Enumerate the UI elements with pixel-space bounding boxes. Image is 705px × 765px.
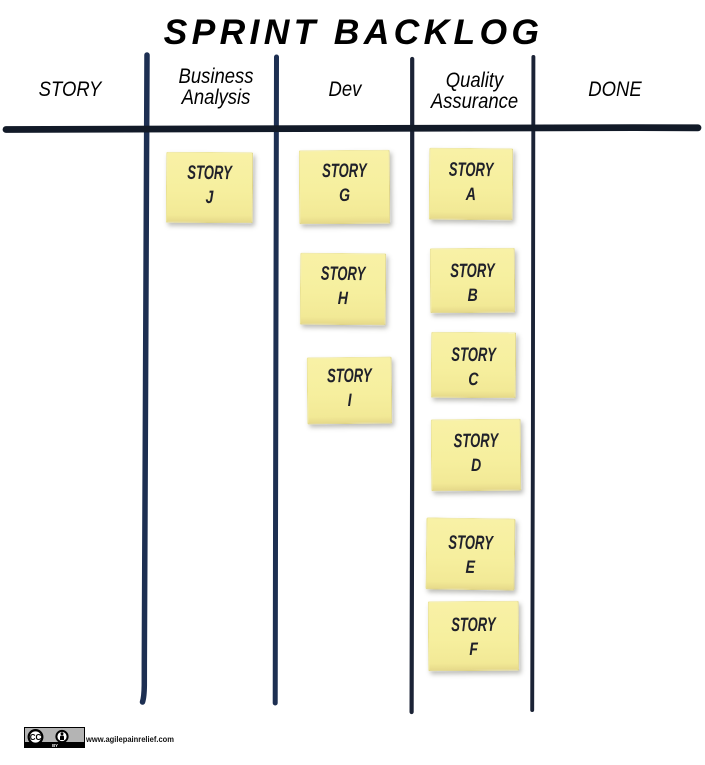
- svg-text:CC: CC: [30, 733, 42, 742]
- svg-text:BY: BY: [52, 743, 58, 748]
